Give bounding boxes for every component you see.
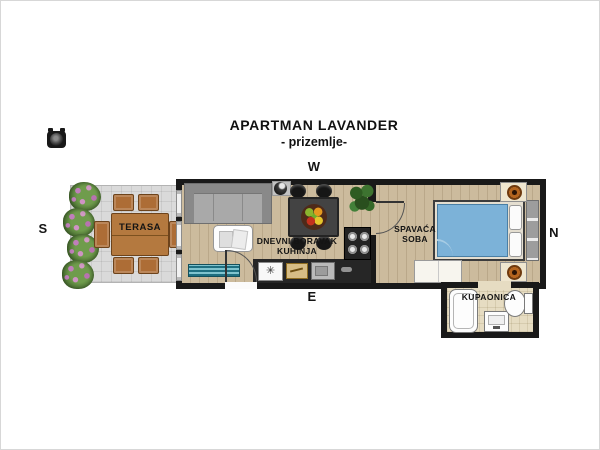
burner-icon	[360, 245, 369, 254]
window	[176, 254, 182, 281]
sofa-arm	[185, 184, 194, 223]
window	[176, 190, 182, 217]
compass-south: S	[34, 222, 52, 237]
lamp-icon	[507, 265, 522, 280]
page-subtitle: - prizemlje-	[134, 135, 494, 149]
nightstand	[500, 182, 527, 202]
grill-icon	[47, 128, 66, 148]
terrace-chair	[113, 257, 134, 274]
dining-chair	[316, 184, 332, 198]
pillow	[509, 232, 522, 257]
bedroom-label-line2: SOBA	[384, 235, 446, 245]
floor-plan-canvas: APARTMAN LAVANDER - prizemlje- W S E N T…	[0, 0, 600, 450]
compass-west: W	[305, 160, 323, 175]
flower-bush-icon	[69, 182, 101, 211]
dining-chair	[290, 184, 306, 198]
terrace-chair	[138, 194, 159, 211]
terrace-chair	[138, 257, 159, 274]
headboard	[526, 200, 539, 261]
plant-icon	[349, 184, 375, 216]
flower-bush-icon	[62, 260, 94, 289]
wardrobe	[414, 260, 462, 283]
sofa-arm	[262, 184, 271, 223]
fruit-bowl-icon	[301, 204, 327, 230]
terrace-chair	[113, 194, 134, 211]
decor-ball-icon	[274, 182, 287, 195]
lamp-icon	[507, 185, 522, 200]
living-room-label-line2: KUHINJA	[244, 247, 350, 257]
terrace-dining-table	[111, 213, 169, 256]
compass-north: N	[545, 226, 563, 241]
entrance-opening	[225, 282, 257, 289]
bathroom-label: KUPAONICA	[451, 293, 527, 303]
cutting-board	[286, 263, 308, 279]
fridge: ✳	[258, 262, 283, 281]
page-title: APARTMAN LAVANDER	[134, 117, 494, 133]
kitchen-sink	[311, 262, 335, 280]
pillow	[509, 205, 522, 230]
burner-icon	[360, 232, 369, 241]
terrace-chair	[94, 221, 110, 248]
bed-mattress	[437, 204, 508, 257]
living-room-label: DNEVNI BORAVAK KUHINJA	[244, 237, 350, 257]
sofa-back	[185, 184, 271, 194]
plan-header: APARTMAN LAVANDER - prizemlje-	[134, 117, 494, 149]
nightstand	[500, 262, 527, 282]
sofa	[184, 183, 272, 224]
grill-pot-icon	[47, 131, 66, 148]
bathroom-sink	[484, 311, 509, 332]
bathroom-opening	[478, 281, 511, 290]
terrace-label: TERASA	[111, 223, 169, 234]
flower-bush-icon	[63, 208, 95, 237]
bedroom-label: SPAVAĆA SOBA	[384, 225, 446, 245]
counter-handle-icon	[341, 267, 352, 272]
compass-east: E	[303, 290, 321, 305]
window	[176, 221, 182, 250]
snowflake-icon: ✳	[266, 265, 275, 277]
